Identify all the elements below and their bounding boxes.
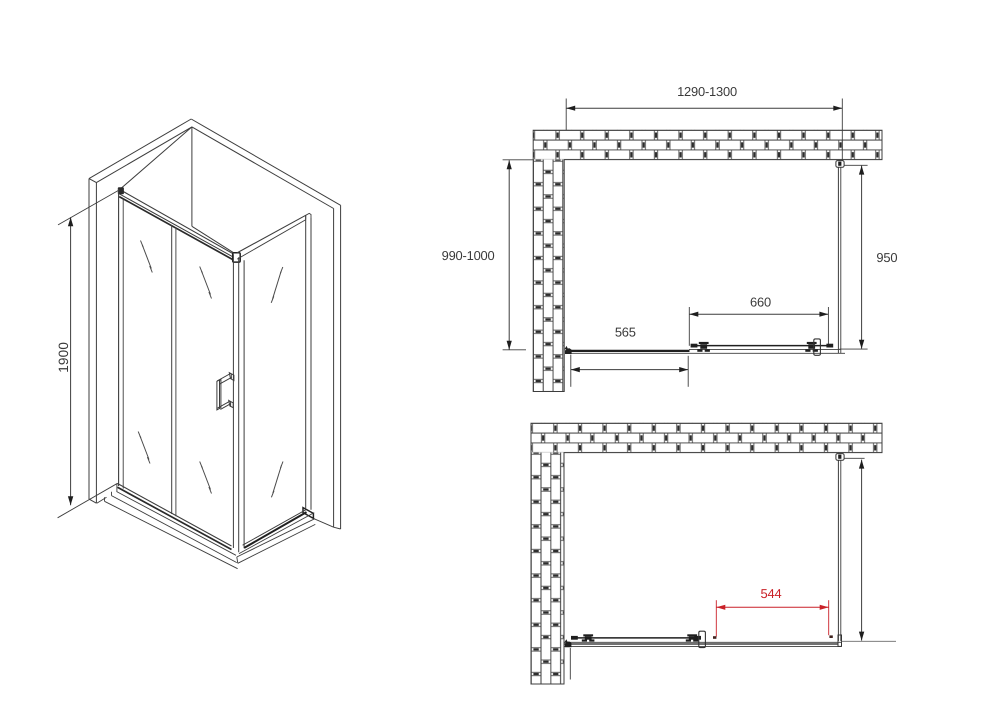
svg-text:1290-1300: 1290-1300: [677, 84, 737, 99]
svg-text:1900: 1900: [56, 342, 71, 373]
svg-text:544: 544: [761, 586, 782, 601]
svg-text:660: 660: [750, 295, 771, 310]
svg-text:565: 565: [615, 325, 636, 340]
svg-text:950: 950: [876, 250, 897, 265]
svg-text:990-1000: 990-1000: [442, 248, 495, 263]
